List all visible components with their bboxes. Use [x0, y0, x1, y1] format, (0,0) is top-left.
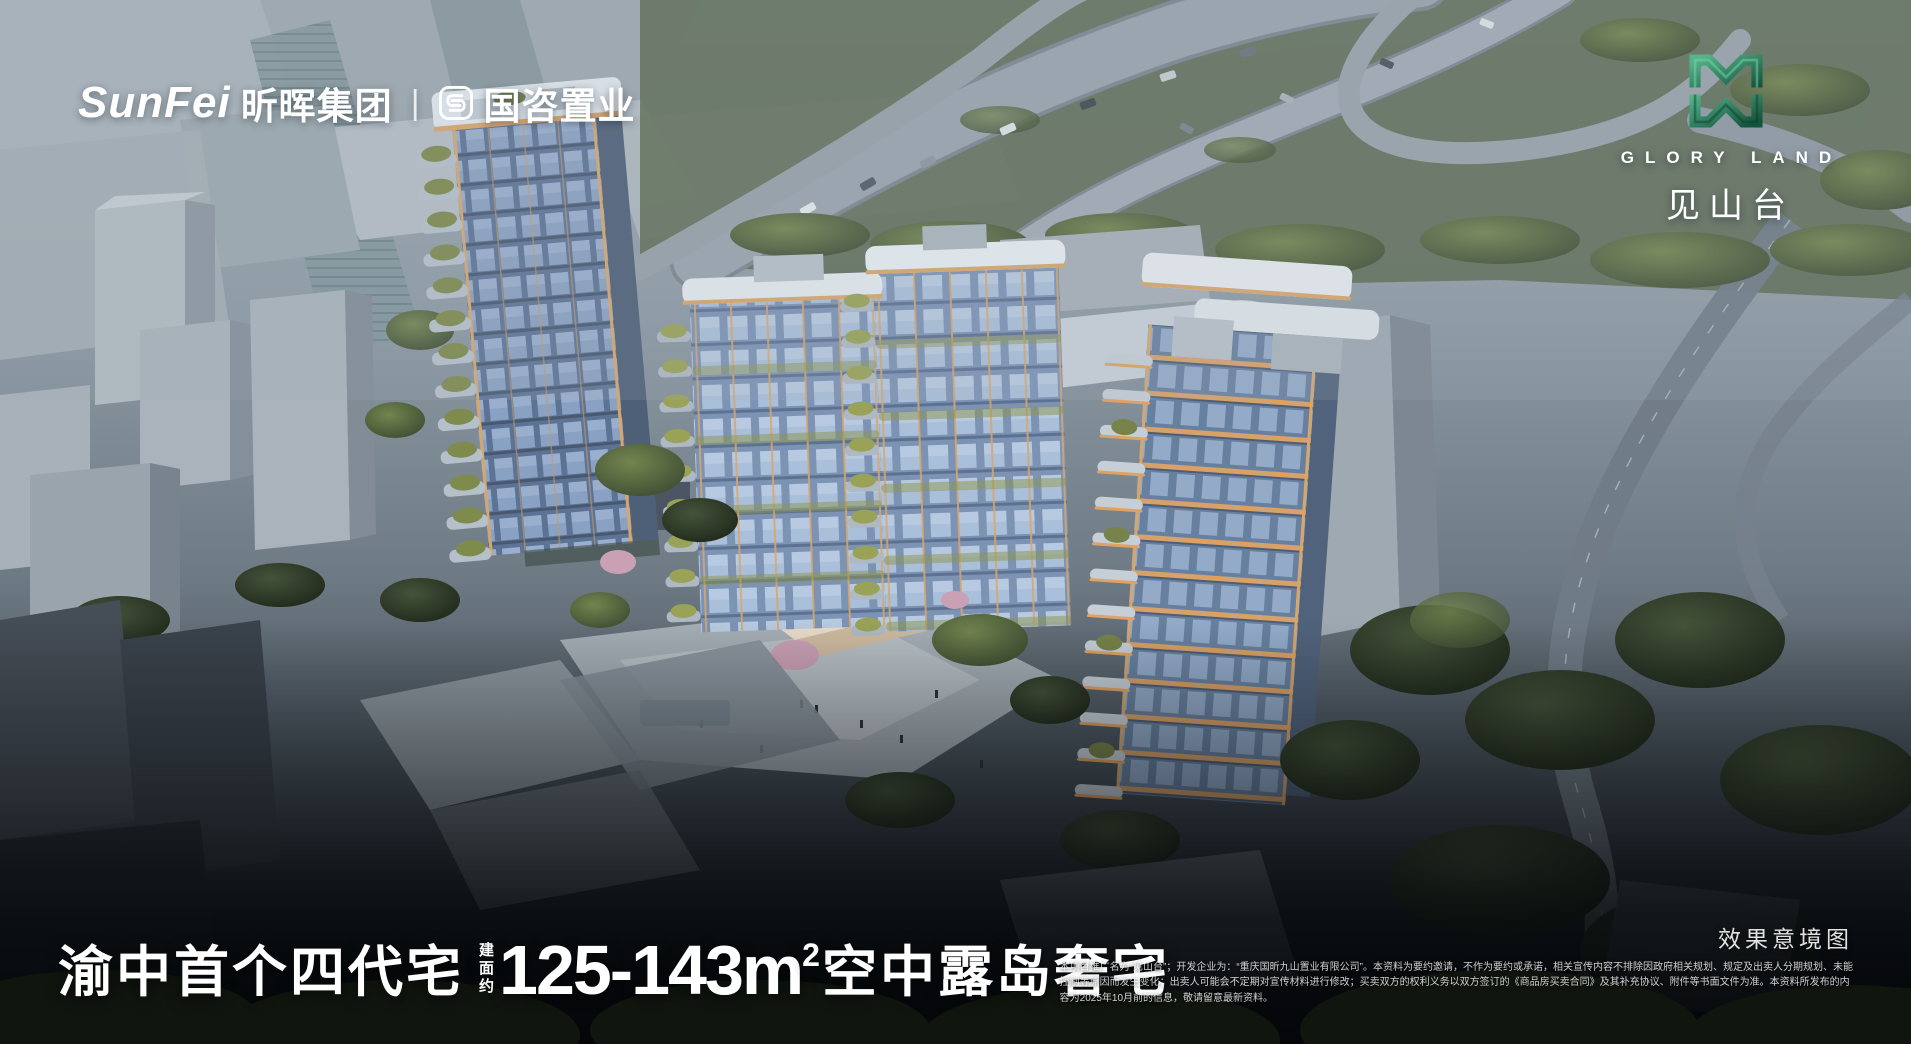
- disclaimer-line-2: 控制等原因而发生变化；出卖人可能会不定期对宣传材料进行修改；买卖双方的权利义务以…: [1060, 975, 1853, 991]
- brand-divider: |: [411, 84, 420, 123]
- headline-area-sup: 2: [802, 937, 820, 973]
- sunfei-logo: SunFei: [78, 78, 231, 128]
- project-name-cn: 见山台: [1657, 178, 1795, 227]
- legal-disclaimer: 本项目推广名为“见山台”；开发企业为：“重庆国昕九山置业有限公司”。本资料为要约…: [1060, 960, 1853, 1007]
- disclaimer-line-3: 容为2025年10月前的信息，敬请留意最新资料。: [1060, 991, 1853, 1007]
- brand-left: SunFei 昕晖集团 | 国咨置业: [78, 76, 636, 130]
- render-type-label: 效果意境图: [1718, 920, 1853, 954]
- project-name-en: GLORY LAND: [1610, 148, 1842, 168]
- sunfei-group-name: 昕晖集团: [241, 76, 393, 130]
- headline-prefix: 渝中首个四代宅: [58, 945, 464, 1000]
- partner-name: 国咨置业: [484, 76, 636, 130]
- poster-root: SunFei 昕晖集团 | 国咨置业 GLORY LAND 见山台: [0, 0, 1911, 1044]
- headline: 渝中首个四代宅 建面约 125-143m2 空中露岛奢宅: [58, 941, 1170, 1000]
- guozi-seal-icon: [438, 85, 474, 121]
- gloryland-mw-emblem-icon: [1683, 48, 1769, 134]
- brand-right: GLORY LAND 见山台: [1596, 48, 1856, 227]
- headline-area-label: 建面约: [478, 942, 493, 996]
- headline-area-value: 125-143m2: [499, 941, 820, 1000]
- disclaimer-line-1: 本项目推广名为“见山台”；开发企业为：“重庆国昕九山置业有限公司”。本资料为要约…: [1060, 960, 1853, 976]
